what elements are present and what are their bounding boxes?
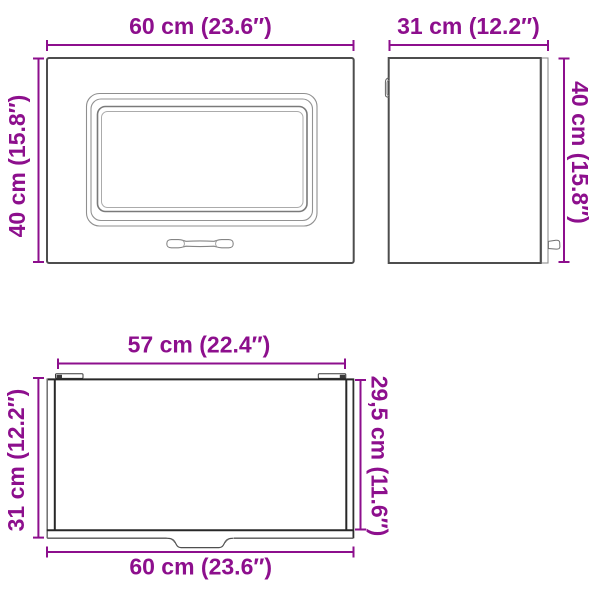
svg-text:40 cm (15.8″): 40 cm (15.8″) (567, 81, 593, 224)
svg-text:60 cm (23.6″): 60 cm (23.6″) (129, 554, 272, 580)
svg-text:31 cm (12.2″): 31 cm (12.2″) (397, 13, 540, 39)
svg-text:57 cm (22.4″): 57 cm (22.4″) (128, 332, 271, 358)
svg-text:31 cm (12.2″): 31 cm (12.2″) (3, 389, 29, 532)
svg-text:40 cm (15.8″): 40 cm (15.8″) (4, 95, 30, 238)
svg-text:29,5 cm (11.6″): 29,5 cm (11.6″) (367, 376, 393, 537)
svg-text:60 cm (23.6″): 60 cm (23.6″) (129, 13, 272, 39)
